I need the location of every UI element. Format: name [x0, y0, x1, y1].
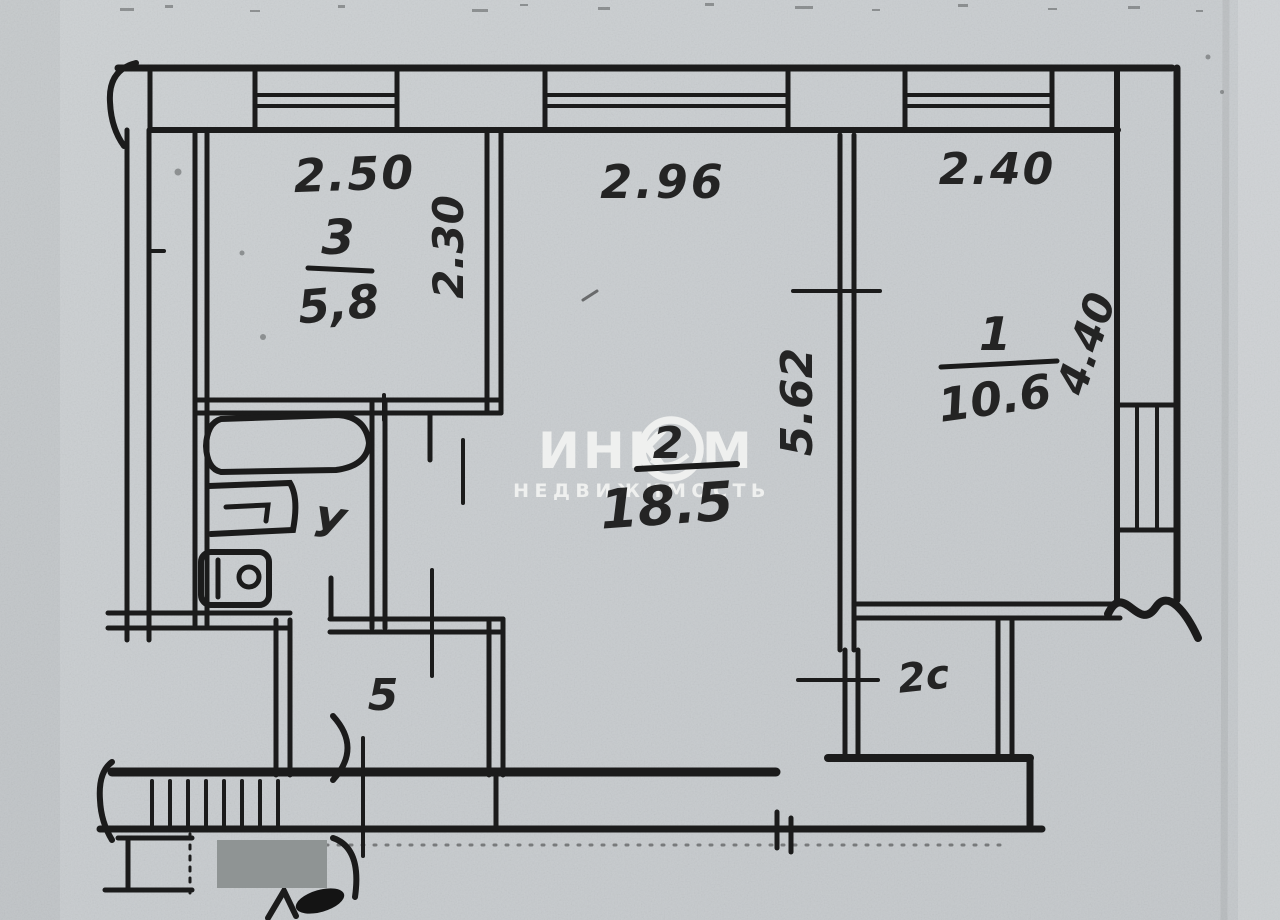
dim-room2-top: 2.96 — [600, 155, 726, 209]
floor-plan-svg: ИНК М НЕДВИЖИМОСТЬ — [0, 0, 1280, 920]
redaction-box — [217, 840, 327, 888]
room2-number: 2 — [653, 418, 684, 469]
room1-number: 1 — [979, 307, 1011, 361]
room3-number: 3 — [321, 210, 354, 266]
dim-room3-top: 2.50 — [293, 145, 416, 203]
dim-room1-top: 2.40 — [939, 144, 1056, 195]
dim-room3-side: 2.30 — [424, 195, 473, 299]
hallway-label: 5 — [368, 670, 399, 721]
dim-room2-side: 5.62 — [772, 348, 823, 457]
room3-area: 5,8 — [296, 274, 382, 335]
room2-area: 18.5 — [598, 469, 735, 541]
scanned-floor-plan: ИНК М НЕДВИЖИМОСТЬ — [0, 0, 1280, 920]
closet-label: 2с — [896, 651, 952, 702]
